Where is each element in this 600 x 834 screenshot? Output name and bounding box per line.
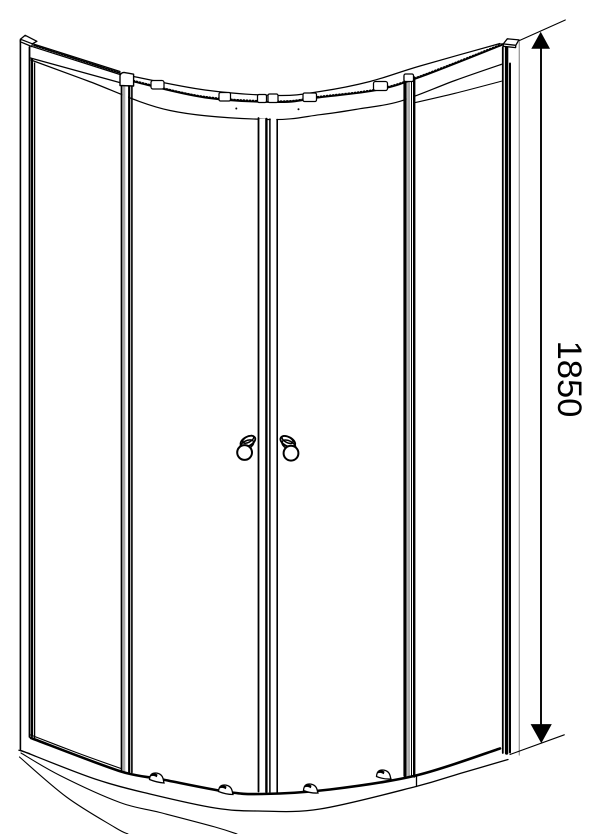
svg-text:1850: 1850 [550,341,588,418]
